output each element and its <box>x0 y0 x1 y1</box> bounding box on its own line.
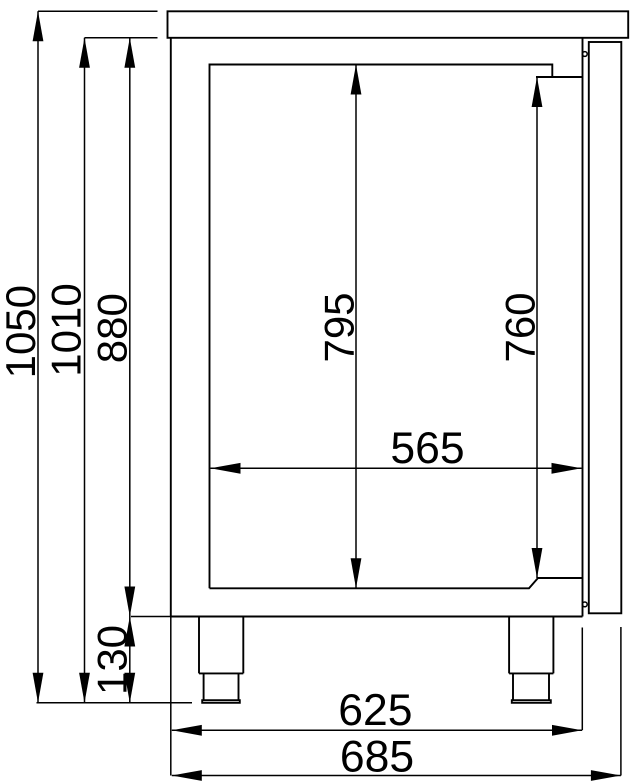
svg-text:130: 130 <box>89 625 136 695</box>
svg-text:1010: 1010 <box>43 283 90 376</box>
svg-text:1050: 1050 <box>0 285 44 378</box>
svg-text:880: 880 <box>89 293 136 363</box>
svg-text:685: 685 <box>340 733 414 782</box>
svg-text:795: 795 <box>316 292 363 362</box>
svg-text:625: 625 <box>338 686 412 735</box>
svg-text:565: 565 <box>390 424 464 473</box>
svg-text:760: 760 <box>496 292 543 362</box>
